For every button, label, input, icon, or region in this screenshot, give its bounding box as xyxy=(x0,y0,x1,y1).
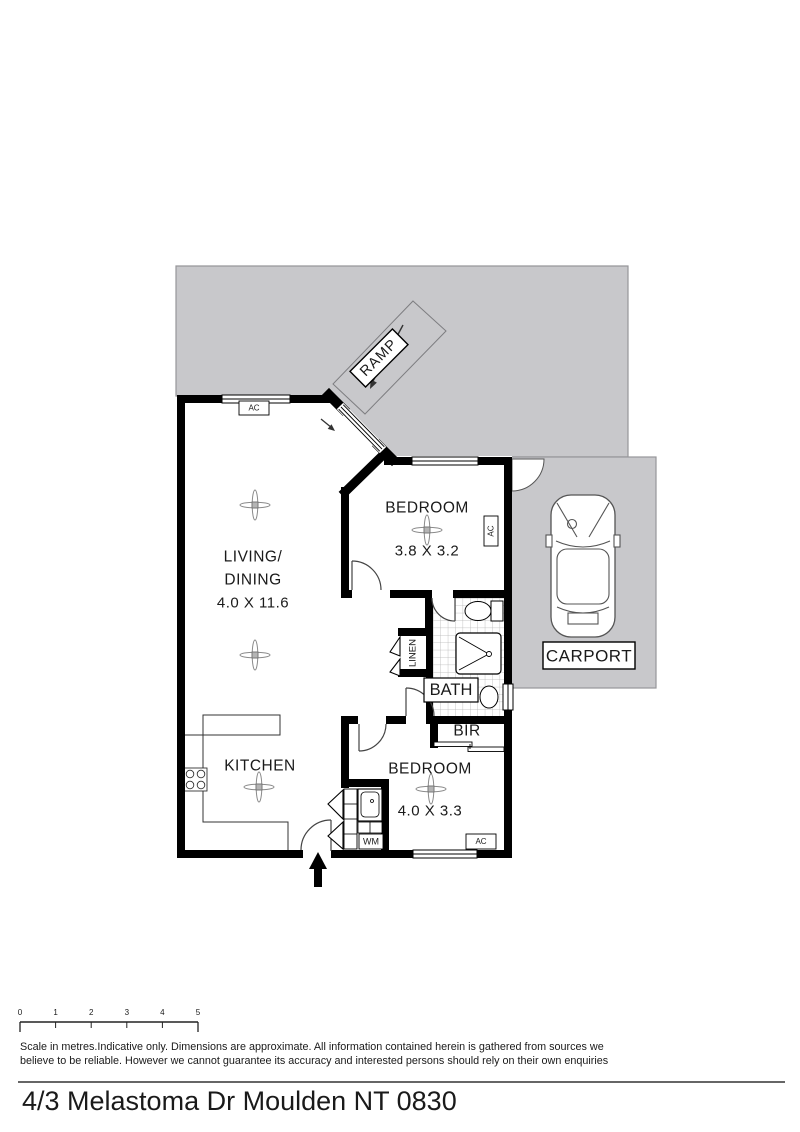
disclaimer: Scale in metres.Indicative only. Dimensi… xyxy=(20,1041,609,1067)
bedroom1-label: BEDROOM xyxy=(385,500,469,517)
bir-label: BIR xyxy=(453,723,480,740)
living-label-line2: DINING xyxy=(224,572,281,589)
shower-icon xyxy=(456,633,501,674)
scale-tick-2: 2 xyxy=(89,1008,94,1017)
car-icon xyxy=(546,495,620,637)
ac-unit-bedroom1: AC xyxy=(484,516,498,546)
kitchen-label: KITCHEN xyxy=(224,758,296,775)
bedroom2-window xyxy=(413,850,477,858)
carport-label: CARPORT xyxy=(543,642,635,669)
wm-label-text: WM xyxy=(363,837,379,847)
floorplan-page: RAMP CARPORT xyxy=(0,0,800,1132)
basin-icon xyxy=(480,686,498,708)
bath-label-text: BATH xyxy=(430,681,473,699)
scale-tick-3: 3 xyxy=(125,1008,130,1017)
wm-label: WM xyxy=(359,834,383,849)
carport-label-text: CARPORT xyxy=(546,647,632,666)
carport-area: CARPORT xyxy=(510,457,656,688)
stove-icon xyxy=(184,768,207,791)
ac-unit-bedroom2: AC xyxy=(466,834,496,849)
living-label-line1: LIVING/ xyxy=(224,549,283,566)
scale-bar: 0 1 2 3 4 5 xyxy=(18,1008,201,1032)
ac-label: AC xyxy=(475,837,486,846)
ac-label: AC xyxy=(248,404,259,413)
ac-label: AC xyxy=(487,525,496,536)
bedroom1-window xyxy=(412,457,478,465)
bath-window xyxy=(503,684,513,710)
bedroom2-dims: 4.0 X 3.3 xyxy=(398,803,463,820)
disclaimer-line2: believe to be reliable. However we canno… xyxy=(20,1055,609,1067)
bedroom1-dims: 3.8 X 3.2 xyxy=(395,543,460,560)
scale-tick-4: 4 xyxy=(160,1008,165,1017)
scale-tick-0: 0 xyxy=(18,1008,23,1017)
scale-tick-5: 5 xyxy=(196,1008,201,1017)
disclaimer-line1: Scale in metres.Indicative only. Dimensi… xyxy=(20,1041,604,1053)
address-title: 4/3 Melastoma Dr Moulden NT 0830 xyxy=(22,1086,457,1116)
linen-label: LINEN xyxy=(408,639,419,667)
ac-unit-living: AC xyxy=(239,401,269,415)
scale-tick-1: 1 xyxy=(53,1008,58,1017)
living-dims: 4.0 X 11.6 xyxy=(217,595,289,612)
bath-label: BATH xyxy=(424,678,478,702)
floorplan-svg: RAMP CARPORT xyxy=(0,0,800,1132)
toilet-icon xyxy=(465,601,503,621)
bedroom2-label: BEDROOM xyxy=(388,761,472,778)
